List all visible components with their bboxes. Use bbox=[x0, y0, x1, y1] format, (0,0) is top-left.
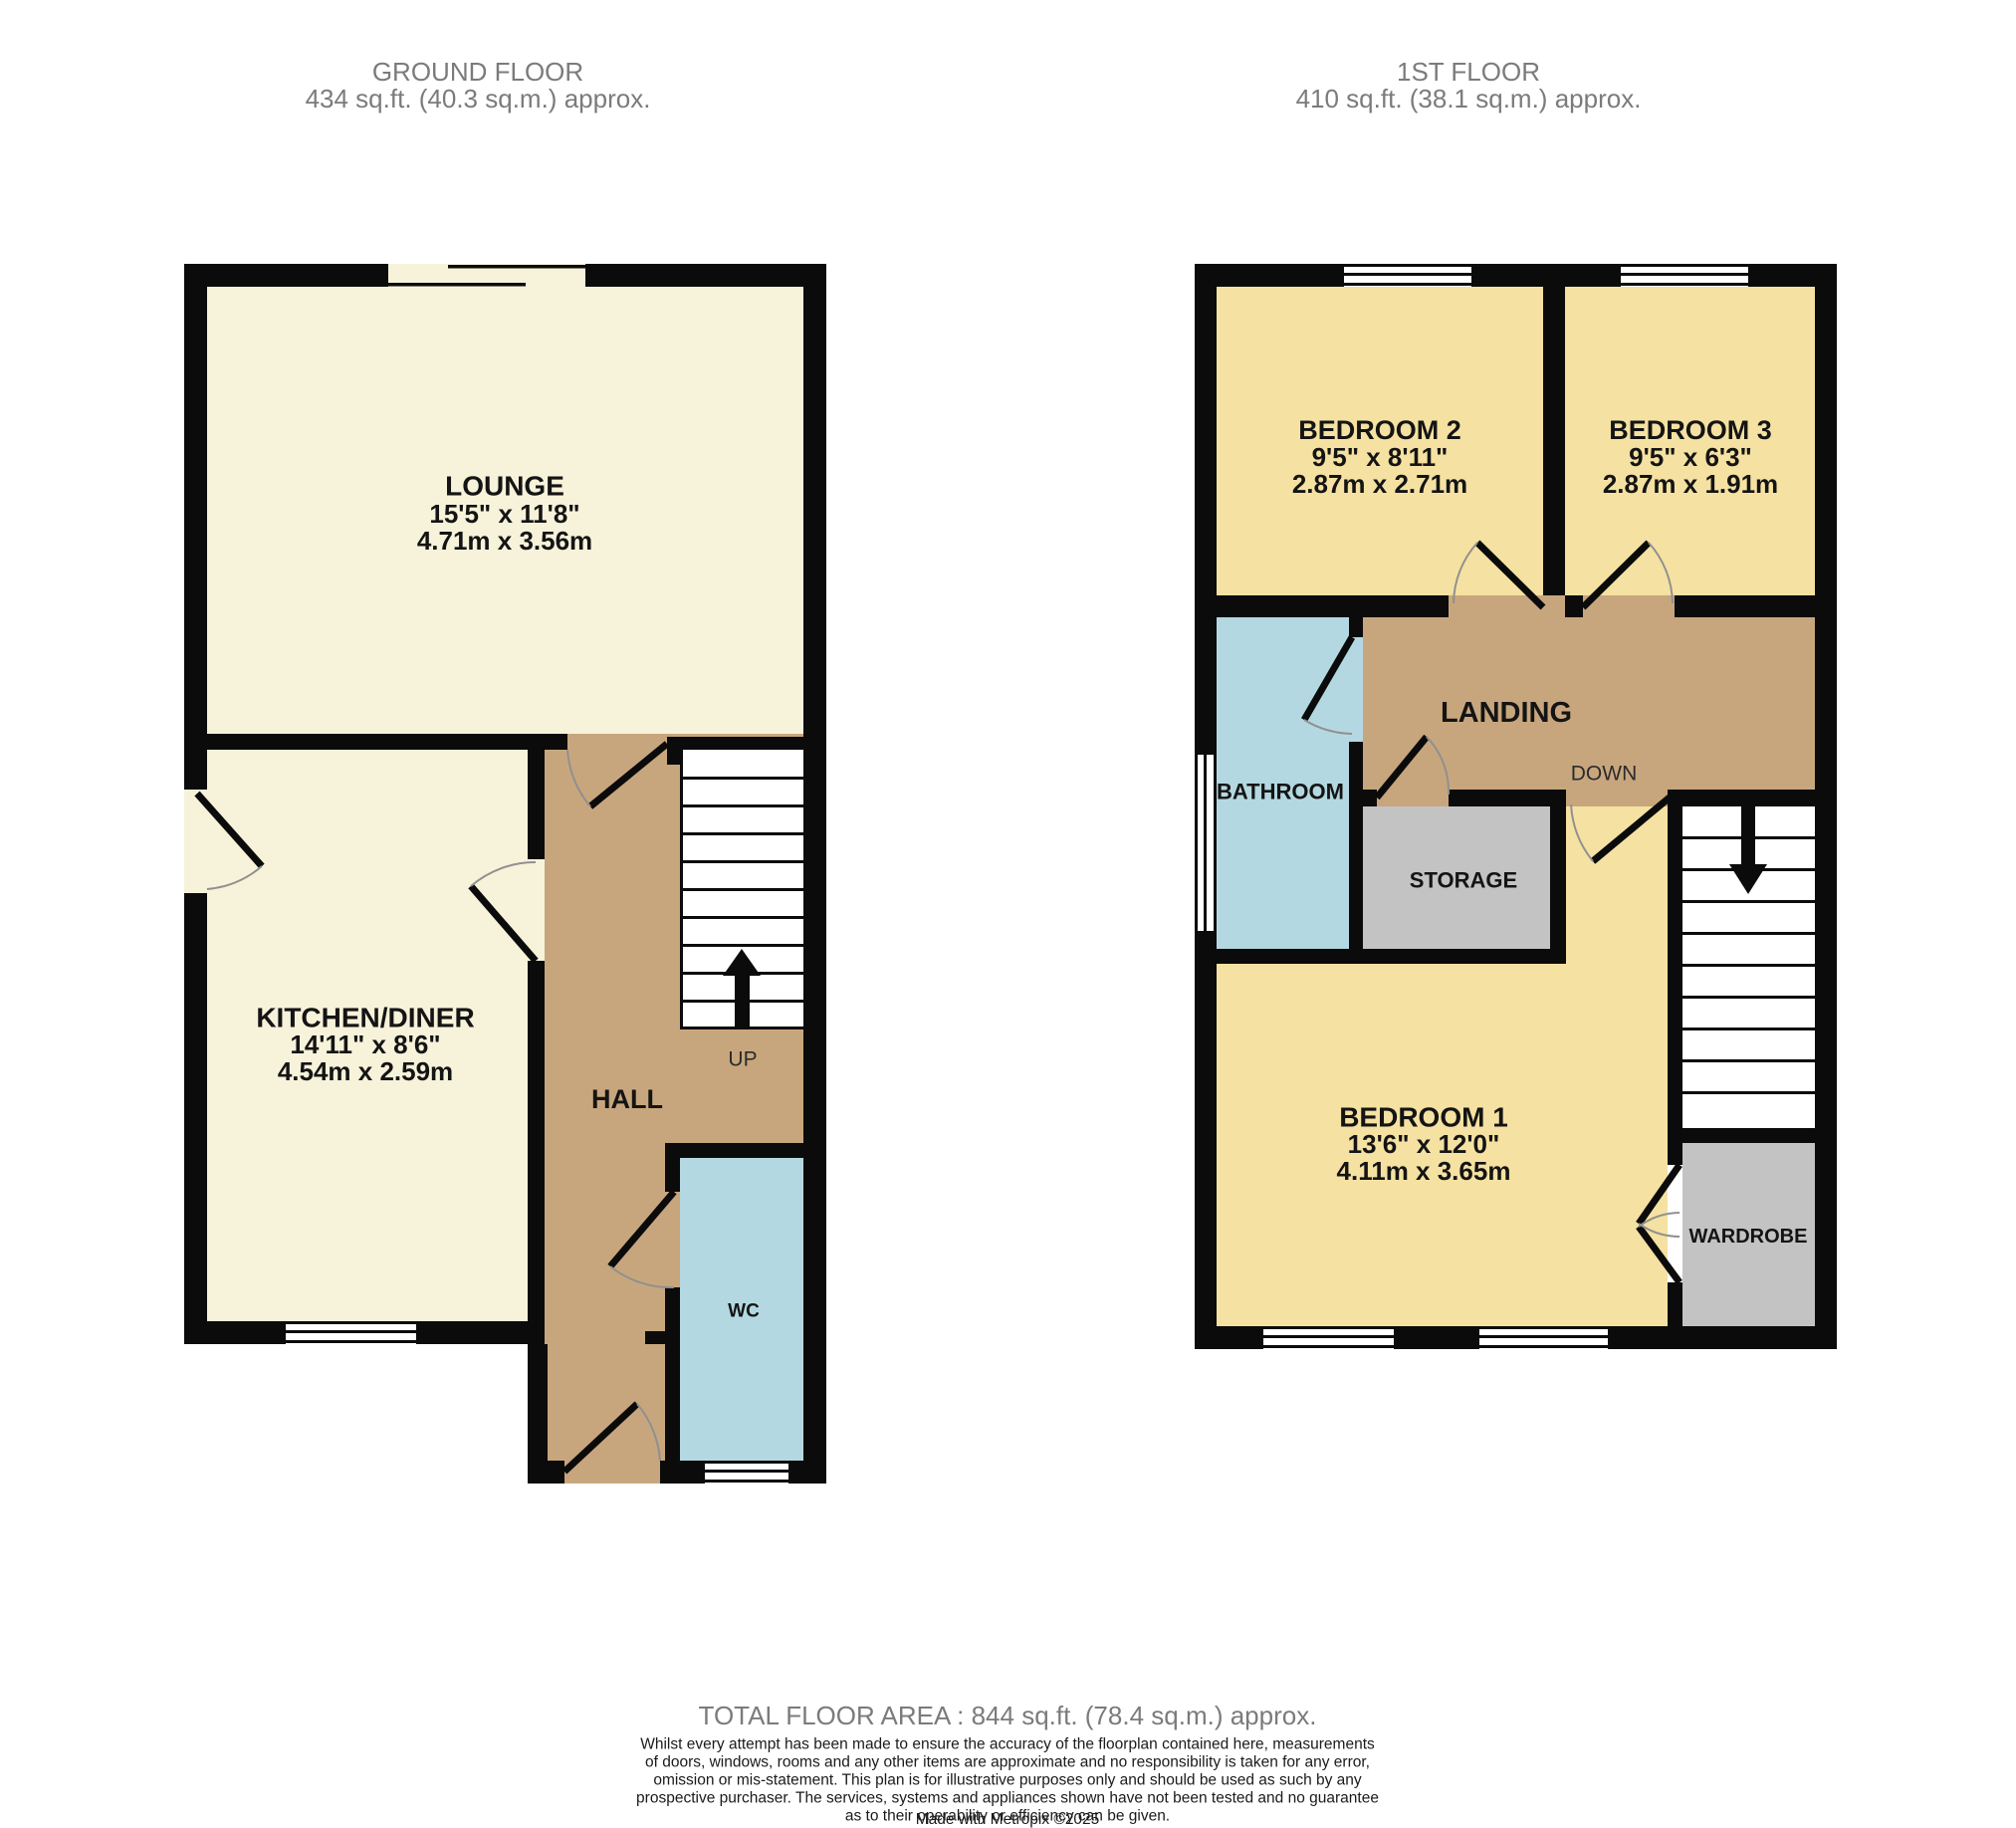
floorplan-drawing: LOUNGE 15'5" x 11'8" 4.71m x 3.56m KITCH… bbox=[0, 0, 2016, 1828]
wardrobe-label: WARDROBE bbox=[1689, 1226, 1808, 1248]
bedroom3-window bbox=[1621, 264, 1748, 287]
lounge-name: LOUNGE bbox=[445, 471, 564, 502]
ground-floor-title: GROUND FLOOR bbox=[372, 57, 583, 87]
kitchen-metric: 4.54m x 2.59m bbox=[278, 1056, 453, 1086]
bedroom3-metric: 2.87m x 1.91m bbox=[1603, 469, 1778, 499]
kitchen-imperial: 14'11" x 8'6" bbox=[290, 1029, 440, 1059]
bedroom2-imperial: 9'5" x 8'11" bbox=[1312, 442, 1449, 472]
first-floor-title: 1ST FLOOR bbox=[1397, 57, 1540, 87]
disclaimer-line: omission or mis-statement. This plan is … bbox=[653, 1772, 1362, 1789]
ground-floor-plan: LOUNGE 15'5" x 11'8" 4.71m x 3.56m KITCH… bbox=[184, 264, 826, 1484]
bedroom1-name: BEDROOM 1 bbox=[1339, 1102, 1508, 1133]
total-floor-area: TOTAL FLOOR AREA : 844 sq.ft. (78.4 sq.m… bbox=[699, 1701, 1317, 1730]
disclaimer-line: prospective purchaser. The services, sys… bbox=[636, 1790, 1379, 1807]
bedroom3-name: BEDROOM 3 bbox=[1609, 415, 1772, 445]
hall-label: HALL bbox=[591, 1084, 663, 1114]
bathroom-window bbox=[1195, 755, 1217, 931]
up-label: UP bbox=[728, 1048, 757, 1071]
bedroom1-metric: 4.11m x 3.65m bbox=[1337, 1156, 1511, 1186]
wc-window bbox=[705, 1461, 788, 1484]
ground-floor-area: 434 sq.ft. (40.3 sq.m.) approx. bbox=[306, 84, 651, 114]
down-arrow-shaft bbox=[1741, 806, 1755, 864]
first-floor-plan: BEDROOM 2 9'5" x 8'11" 2.87m x 2.71m BED… bbox=[1195, 264, 1837, 1349]
first-floor-area: 410 sq.ft. (38.1 sq.m.) approx. bbox=[1296, 84, 1642, 114]
storage-label: STORAGE bbox=[1410, 868, 1517, 893]
made-with-credit: Made with Metropix ©2025 bbox=[916, 1811, 1100, 1828]
footer: TOTAL FLOOR AREA : 844 sq.ft. (78.4 sq.m… bbox=[636, 1701, 1379, 1828]
disclaimer-line: of doors, windows, rooms and any other i… bbox=[645, 1754, 1370, 1771]
bedroom2-name: BEDROOM 2 bbox=[1298, 415, 1461, 445]
disclaimer-line: Whilst every attempt has been made to en… bbox=[640, 1736, 1375, 1753]
kitchen-window bbox=[286, 1321, 416, 1344]
bedroom1-window-right bbox=[1479, 1326, 1608, 1349]
bedroom2-metric: 2.87m x 2.71m bbox=[1292, 469, 1467, 499]
corridor-area bbox=[1566, 806, 1668, 964]
bathroom-label: BATHROOM bbox=[1217, 780, 1344, 804]
floorplan-page: LOUNGE 15'5" x 11'8" 4.71m x 3.56m KITCH… bbox=[0, 0, 2016, 1828]
bedroom3-imperial: 9'5" x 6'3" bbox=[1629, 442, 1752, 472]
lounge-metric: 4.71m x 3.56m bbox=[417, 526, 592, 556]
down-label: DOWN bbox=[1571, 763, 1638, 786]
landing-label: LANDING bbox=[1441, 697, 1572, 729]
bedroom1-imperial: 13'6" x 12'0" bbox=[1348, 1129, 1500, 1159]
up-arrow-shaft bbox=[735, 974, 750, 1028]
kitchen-name: KITCHEN/DINER bbox=[256, 1003, 474, 1033]
lounge-imperial: 15'5" x 11'8" bbox=[429, 499, 579, 529]
plan-headers: GROUND FLOOR 434 sq.ft. (40.3 sq.m.) app… bbox=[306, 57, 1642, 114]
bedroom2-window bbox=[1344, 264, 1471, 287]
wc-label: WC bbox=[728, 1301, 760, 1322]
bedroom1-window-left bbox=[1263, 1326, 1394, 1349]
